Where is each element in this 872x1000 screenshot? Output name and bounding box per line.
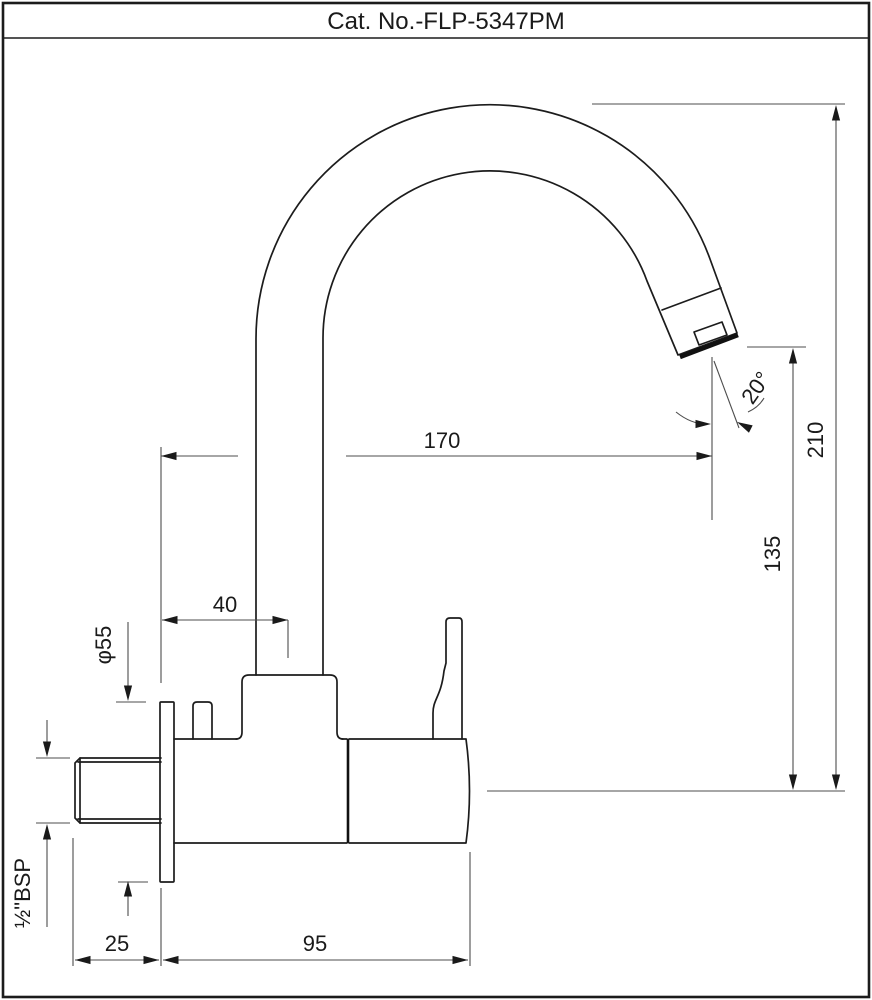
dim-flange-diameter-label: φ55 <box>91 626 116 665</box>
body-left-section <box>174 739 347 843</box>
dimension-annotations: 170 40 φ55 ½"BSP 25 <box>10 104 845 966</box>
lever-handle <box>433 618 462 739</box>
faucet-outline <box>75 105 738 882</box>
drawing-sheet: Cat. No.-FLP-5347PM <box>0 0 872 1000</box>
dim-spout-clearance: 135 <box>760 348 797 790</box>
body-boss <box>193 702 212 739</box>
dim-outlet-angle: 20° <box>676 357 776 520</box>
dim-spout-clearance-label: 135 <box>760 536 785 573</box>
dim-flange-diameter: φ55 <box>91 622 132 916</box>
dim-spout-reach-label: 170 <box>424 428 461 453</box>
body-right-section <box>349 739 470 843</box>
dim-body-length: 95 <box>163 931 468 964</box>
dim-overall-height-label: 210 <box>803 422 828 459</box>
dim-riser-offset: 40 <box>162 592 288 624</box>
dim-inlet-thread: ½"BSP <box>10 720 51 928</box>
inlet-pipe <box>75 758 161 823</box>
riser-base-step <box>236 675 343 739</box>
dim-outlet-angle-label: 20° <box>736 367 776 409</box>
aerator-joint-line <box>662 288 721 310</box>
sheet-border <box>3 3 869 997</box>
dim-spout-reach: 170 <box>161 428 712 460</box>
inlet-pipe-thread-lines <box>78 758 161 823</box>
dim-wall-projection: 25 <box>75 931 159 964</box>
spout-gooseneck <box>256 105 737 675</box>
dim-overall-height: 210 <box>803 105 840 790</box>
wall-flange <box>160 702 174 882</box>
dim-inlet-thread-label: ½"BSP <box>10 858 35 928</box>
technical-drawing: Cat. No.-FLP-5347PM <box>0 0 872 1000</box>
catalog-number-title: Cat. No.-FLP-5347PM <box>327 8 564 35</box>
dim-riser-offset-label: 40 <box>213 592 237 617</box>
dim-body-length-label: 95 <box>303 931 327 956</box>
dim-wall-projection-label: 25 <box>105 931 129 956</box>
